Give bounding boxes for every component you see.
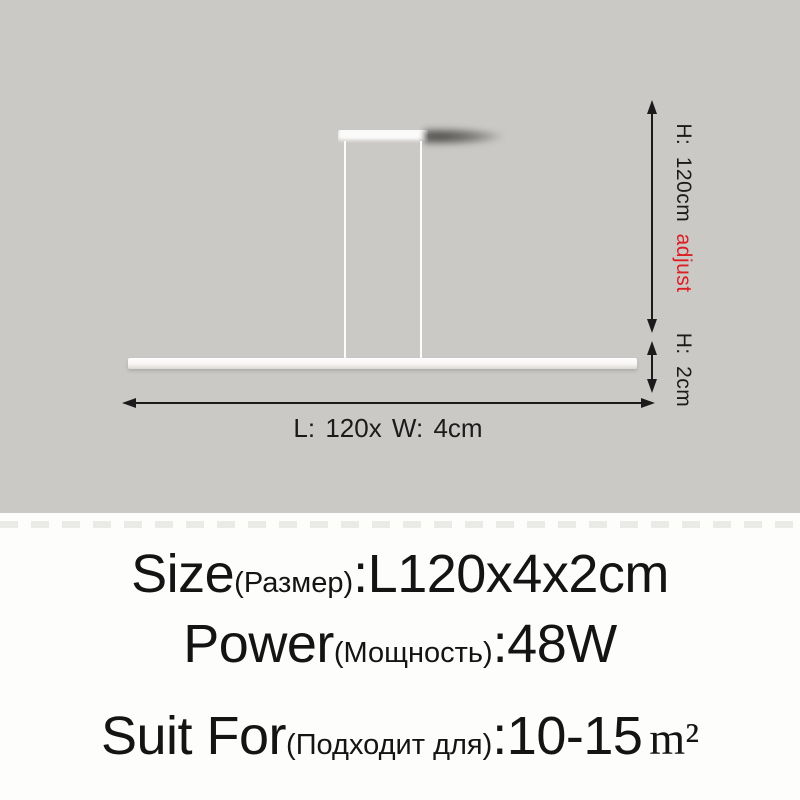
spec-label-en: Suit For — [101, 706, 286, 766]
bar-height-dimension-label: H: 2cm — [671, 333, 695, 408]
arrow-left-icon — [122, 398, 136, 408]
spec-label-ru: (Размер) — [234, 567, 353, 599]
height-dimension-label: H: 120cm adjust — [671, 123, 695, 292]
spec-size-row: Size(Размер):L120x4x2cm — [0, 547, 800, 615]
adjust-label: adjust — [672, 234, 695, 293]
height-dimension-line — [651, 111, 653, 322]
spec-value: :10-15 — [492, 706, 642, 766]
spec-label-ru: (Подходит для) — [286, 729, 492, 761]
photo-background: H: 120cm adjust H: 2cm L: 120x W: 4cm — [0, 0, 800, 513]
product-dimension-image: H: 120cm adjust H: 2cm L: 120x W: 4cm Si… — [0, 0, 800, 800]
lamp-bar — [128, 358, 637, 369]
length-dimension-label: L: 120x W: 4cm — [293, 413, 482, 444]
height-dimension-value: H: 120cm — [672, 123, 695, 222]
spec-label-en: Power — [183, 614, 334, 674]
spec-label-ru: (Мощность) — [334, 637, 493, 669]
spec-value: :L120x4x2cm — [353, 544, 669, 604]
length-dimension-line — [133, 402, 644, 404]
spec-value: :48W — [493, 614, 617, 674]
spec-unit: m² — [649, 713, 699, 764]
canopy-shadow — [424, 127, 504, 146]
spec-label-en: Size — [131, 544, 234, 604]
dashed-separator — [0, 521, 800, 528]
spec-suitfor-row: Suit For(Подходит для):10-15m² — [0, 709, 800, 777]
arrow-up-icon — [647, 100, 657, 114]
suspension-wire-right — [420, 141, 422, 359]
spec-power-row: Power(Мощность):48W — [0, 617, 800, 685]
arrow-up-icon — [647, 341, 657, 355]
suspension-wire-left — [344, 141, 346, 359]
arrow-down-icon — [647, 379, 657, 393]
arrow-right-icon — [641, 398, 655, 408]
arrow-down-icon — [647, 319, 657, 333]
ceiling-canopy — [338, 130, 428, 143]
